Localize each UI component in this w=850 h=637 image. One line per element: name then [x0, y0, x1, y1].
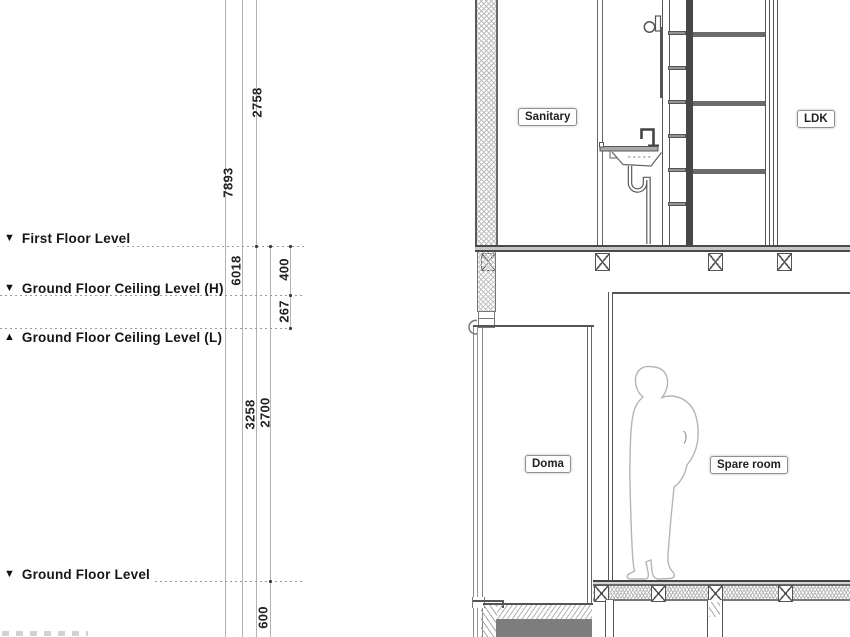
- room-label-doma: Doma: [525, 455, 571, 473]
- dimension-line-7893: [225, 0, 226, 637]
- ceiling-low-line: [473, 325, 594, 327]
- level-label-first-floor: ▼ First Floor Level: [4, 231, 130, 246]
- shelf-board: [693, 32, 765, 37]
- foundation-hatch-slab: [497, 605, 592, 620]
- fixtures-and-figure: [0, 0, 850, 637]
- level-marker-down-icon: ▼: [4, 233, 15, 244]
- exterior-wall-lower: [477, 252, 496, 312]
- counter-bracket: [610, 152, 623, 159]
- level-label-text: Ground Floor Ceiling Level (L): [22, 330, 222, 345]
- level-label-ceiling-h: ▼ Ground Floor Ceiling Level (H): [4, 281, 224, 296]
- dimension-line-6018: [242, 0, 243, 637]
- architectural-section-drawing: ▼ First Floor Level ▼ Ground Floor Ceili…: [0, 0, 850, 637]
- floor-post-hatch: [709, 602, 720, 617]
- ladder-rung: [668, 134, 686, 138]
- wall-mounted-pipe: [660, 27, 663, 98]
- dimension-value-6018: 6018: [229, 231, 244, 311]
- partition-wall-doma-face: [587, 327, 592, 603]
- level-label-text: Ground Floor Ceiling Level (H): [22, 281, 224, 296]
- level-marker-down-icon: ▼: [4, 283, 15, 294]
- ladder-rung: [668, 100, 686, 104]
- level-marker-up-icon: ▲: [4, 332, 15, 343]
- exterior-wall-upper: [475, 0, 498, 245]
- floor-blocking: [778, 585, 793, 602]
- level-label-text: First Floor Level: [22, 231, 130, 246]
- p-trap-pipe-inner: [630, 166, 649, 244]
- foundation-hatch-left: [481, 605, 497, 637]
- dimension-value-267: 267: [277, 272, 292, 352]
- level-line-ground-floor: [155, 581, 304, 582]
- ladder-rung: [668, 202, 686, 206]
- first-floor-slab: [475, 245, 850, 252]
- floor-post: [605, 600, 614, 637]
- room-label-ldk: LDK: [797, 110, 835, 128]
- sink-counter: [600, 147, 658, 152]
- ldk-wall-outer: [765, 0, 770, 245]
- level-marker-down-icon: ▼: [4, 569, 15, 580]
- glazed-door: [473, 326, 483, 637]
- shelf-board: [693, 101, 765, 106]
- human-figure-silhouette: [627, 366, 698, 579]
- sanitary-partition-wall: [597, 0, 603, 245]
- sink-basin: [612, 152, 662, 166]
- ladder-right-rail: [686, 0, 693, 245]
- room-label-sanitary: Sanitary: [518, 108, 577, 126]
- level-line-ceiling-l: [0, 328, 292, 329]
- dimension-value-3258: 3258: [243, 375, 258, 455]
- dimension-value-600: 600: [256, 578, 271, 637]
- faucet-icon: [642, 130, 654, 147]
- figure-hand-mark: [684, 431, 687, 444]
- partition-wall-spare-face: [608, 292, 613, 583]
- level-label-text: Ground Floor Level: [22, 567, 150, 582]
- ladder-left-rail: [662, 0, 670, 245]
- ceiling-high-line: [608, 292, 850, 294]
- foundation-dark-fill: [496, 619, 592, 637]
- dim-tick: [255, 245, 258, 248]
- shelf-board: [693, 169, 765, 174]
- joist-blocking: [777, 253, 792, 271]
- dim-tick: [269, 245, 272, 248]
- ladder-rung: [668, 168, 686, 172]
- dimension-value-2758: 2758: [250, 63, 265, 143]
- ladder-rung: [668, 31, 686, 35]
- clipped-level-label-remnant: [2, 631, 88, 636]
- joist-blocking: [595, 253, 610, 271]
- p-trap-pipe: [630, 166, 649, 244]
- pulley-icon: [644, 22, 654, 32]
- level-label-ceiling-l: ▲ Ground Floor Ceiling Level (L): [4, 330, 222, 345]
- floor-blocking: [651, 585, 666, 602]
- dimension-value-2700: 2700: [258, 373, 273, 453]
- dimension-value-7893: 7893: [221, 143, 236, 223]
- ldk-wall-inner: [773, 0, 778, 245]
- ladder-rung: [668, 66, 686, 70]
- door-sill-line: [473, 600, 503, 602]
- joist-blocking: [708, 253, 723, 271]
- level-label-ground-floor: ▼ Ground Floor Level: [4, 567, 150, 582]
- room-label-spare-room: Spare room: [710, 456, 788, 474]
